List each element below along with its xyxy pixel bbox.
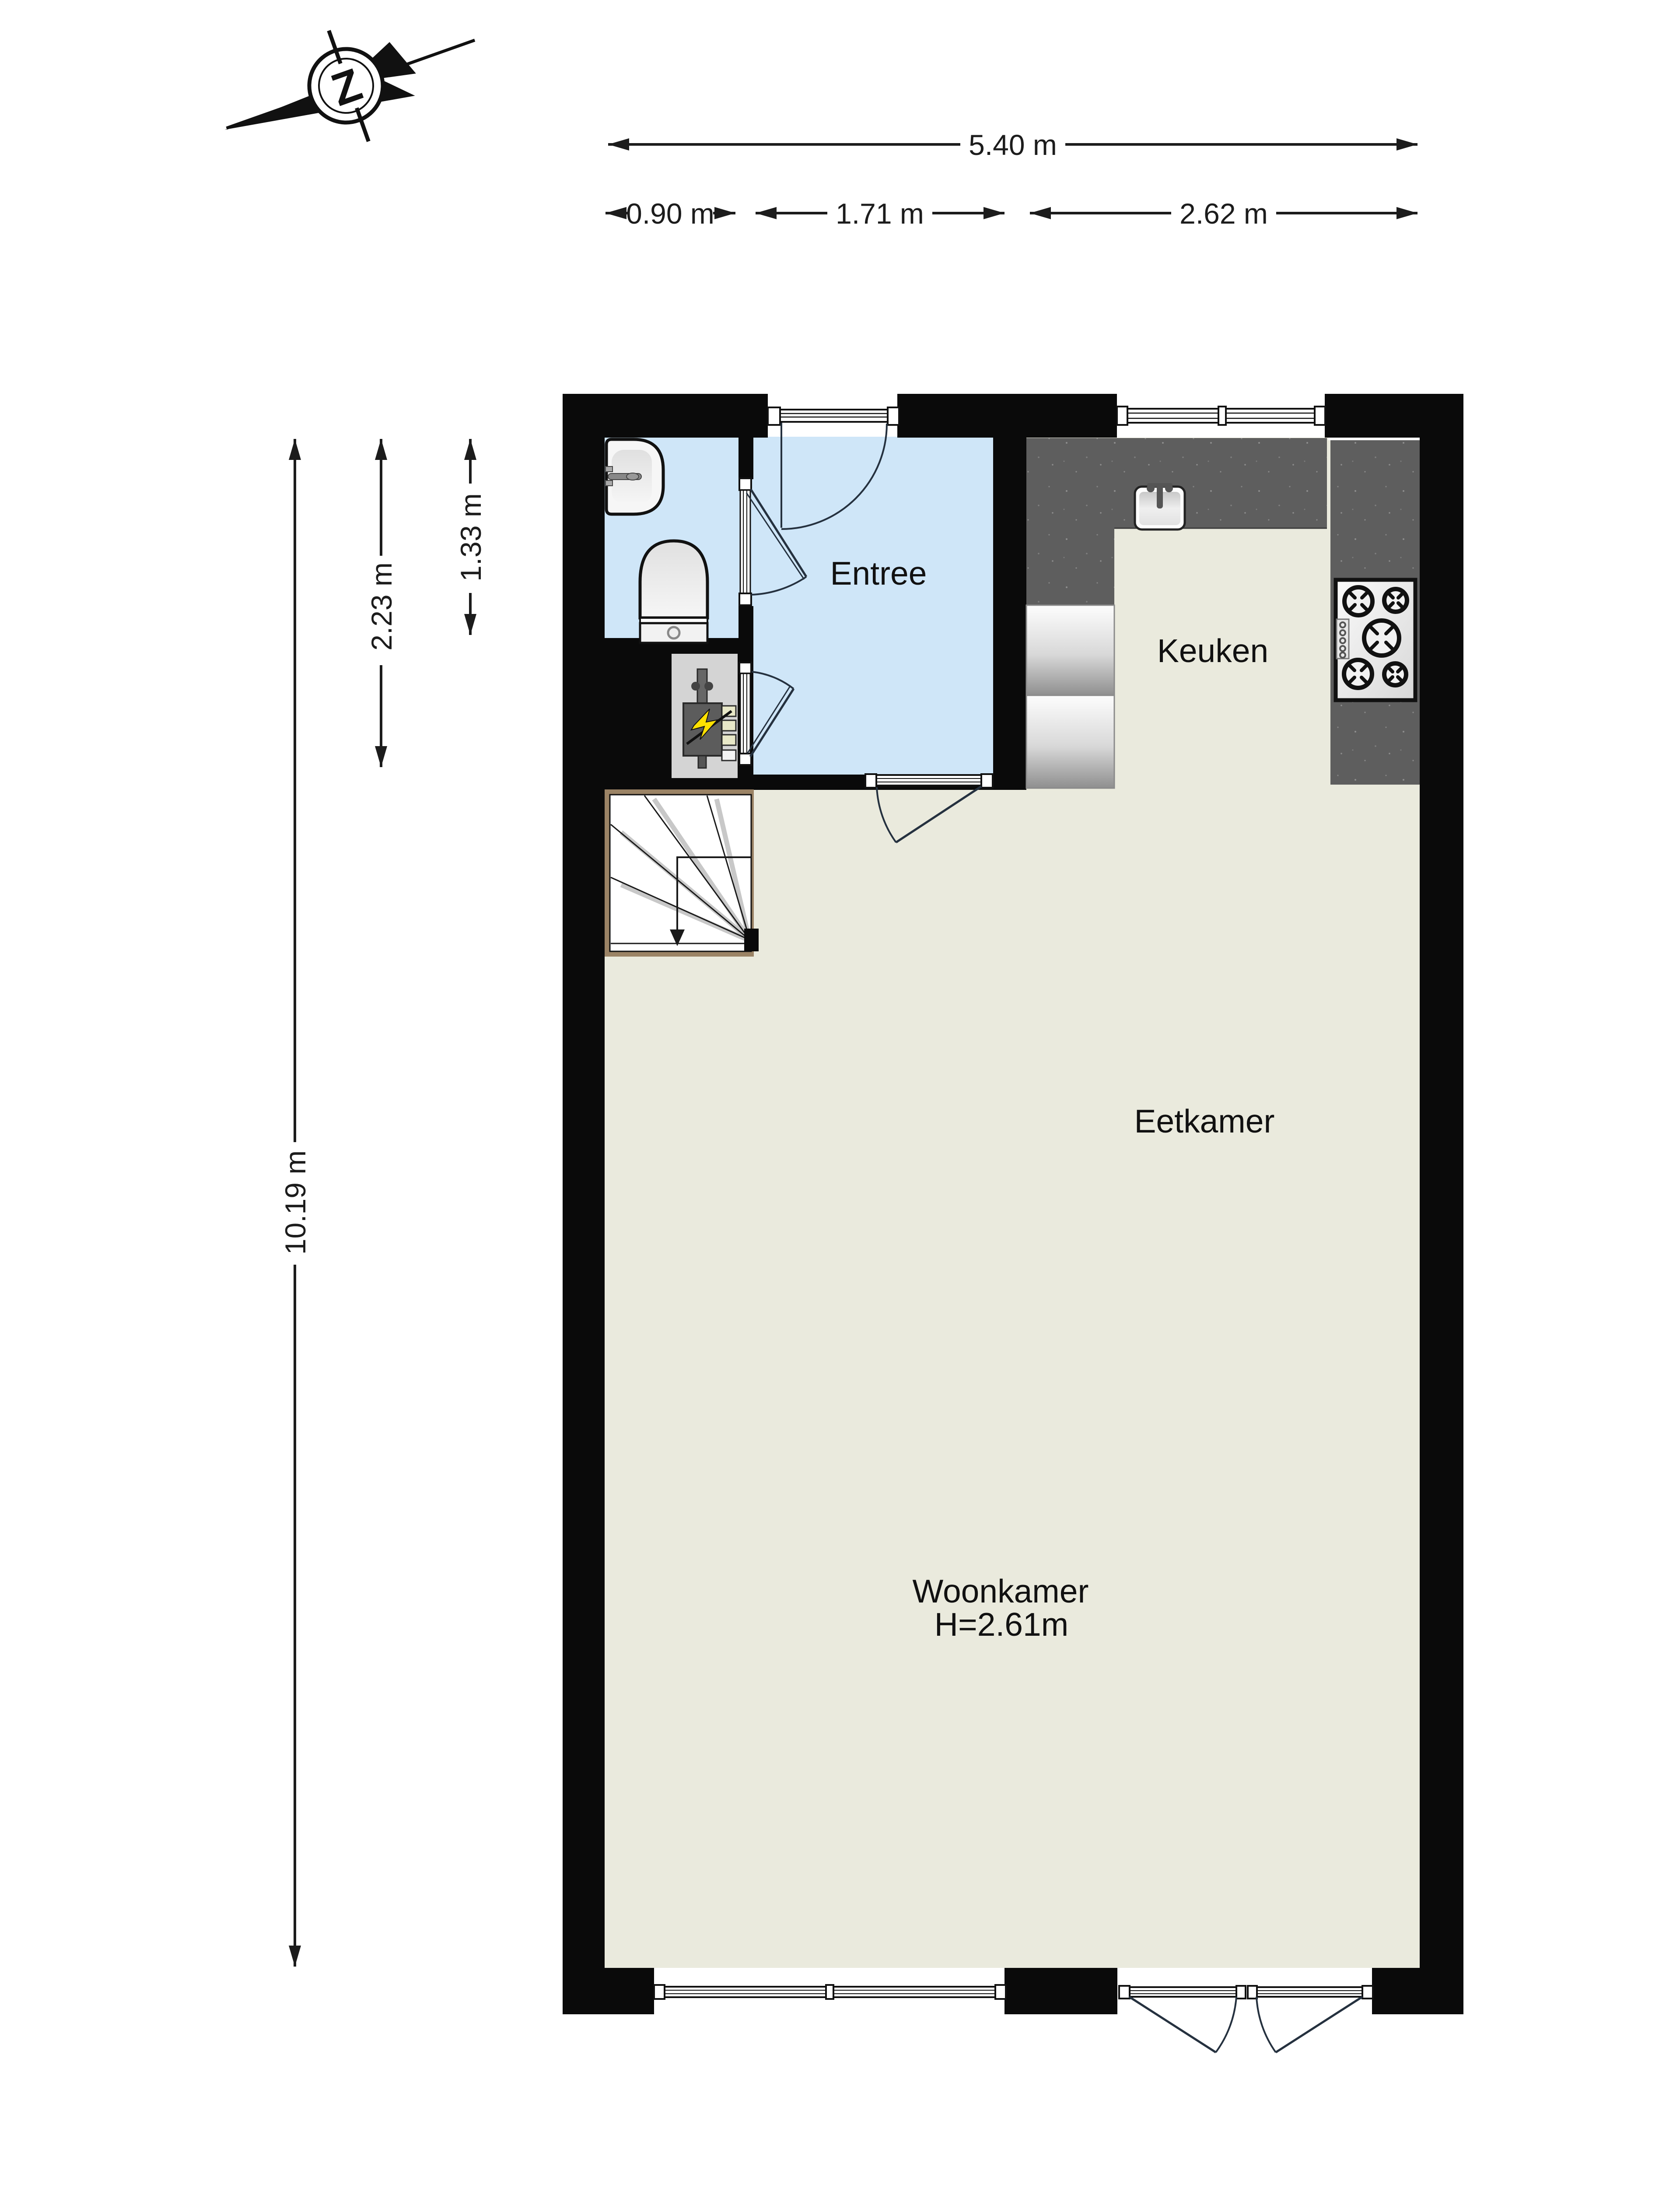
svg-text:5.40 m: 5.40 m bbox=[969, 129, 1057, 161]
svg-text:Eetkamer: Eetkamer bbox=[1134, 1103, 1275, 1140]
svg-text:1.71 m: 1.71 m bbox=[836, 197, 924, 230]
svg-text:0.90 m: 0.90 m bbox=[626, 197, 714, 230]
svg-text:Entree: Entree bbox=[830, 555, 927, 592]
svg-text:1.33 m: 1.33 m bbox=[455, 493, 487, 582]
svg-text:H=2.61m: H=2.61m bbox=[934, 1606, 1068, 1643]
svg-text:Woonkamer: Woonkamer bbox=[913, 1573, 1089, 1609]
svg-text:2.62 m: 2.62 m bbox=[1179, 197, 1268, 230]
svg-text:10.19 m: 10.19 m bbox=[279, 1150, 311, 1255]
svg-text:2.23 m: 2.23 m bbox=[365, 562, 398, 651]
svg-text:Keuken: Keuken bbox=[1157, 632, 1268, 669]
